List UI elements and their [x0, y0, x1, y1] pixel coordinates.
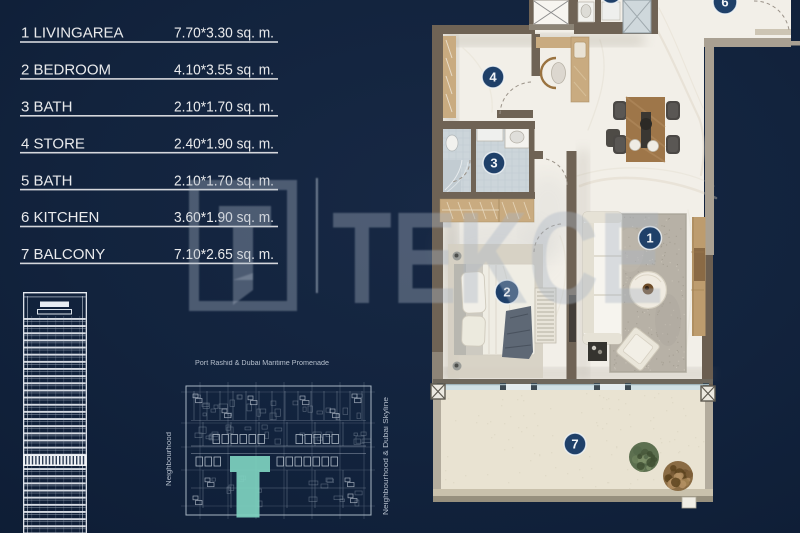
svg-text:3 BATH: 3 BATH: [21, 99, 72, 116]
svg-text:4: 4: [489, 70, 497, 85]
svg-text:5 BATH: 5 BATH: [21, 172, 72, 189]
svg-text:6: 6: [721, 0, 728, 10]
svg-text:6 KITCHEN: 6 KITCHEN: [21, 209, 99, 226]
svg-text:2.10*1.70 sq. m.: 2.10*1.70 sq. m.: [174, 100, 274, 116]
svg-text:4.10*3.55 sq. m.: 4.10*3.55 sq. m.: [174, 63, 274, 79]
svg-text:Neighbourhood & Dubai Skyline: Neighbourhood & Dubai Skyline: [383, 397, 390, 515]
svg-text:2.40*1.90 sq. m.: 2.40*1.90 sq. m.: [174, 136, 274, 152]
svg-text:7: 7: [571, 437, 578, 452]
svg-text:7.70*3.30 sq. m.: 7.70*3.30 sq. m.: [174, 26, 274, 42]
svg-text:7 BALCONY: 7 BALCONY: [21, 246, 105, 263]
svg-text:Neighbourhood: Neighbourhood: [166, 432, 173, 486]
svg-text:2 BEDROOM: 2 BEDROOM: [21, 62, 111, 79]
svg-text:TEKCE: TEKCE: [332, 184, 664, 331]
svg-text:1 LIVINGAREA: 1 LIVINGAREA: [21, 25, 124, 42]
svg-text:4 STORE: 4 STORE: [21, 135, 85, 152]
svg-text:3: 3: [490, 156, 497, 171]
svg-text:Port Rashid & Dubai Maritime P: Port Rashid & Dubai Maritime Promenade: [195, 360, 329, 367]
